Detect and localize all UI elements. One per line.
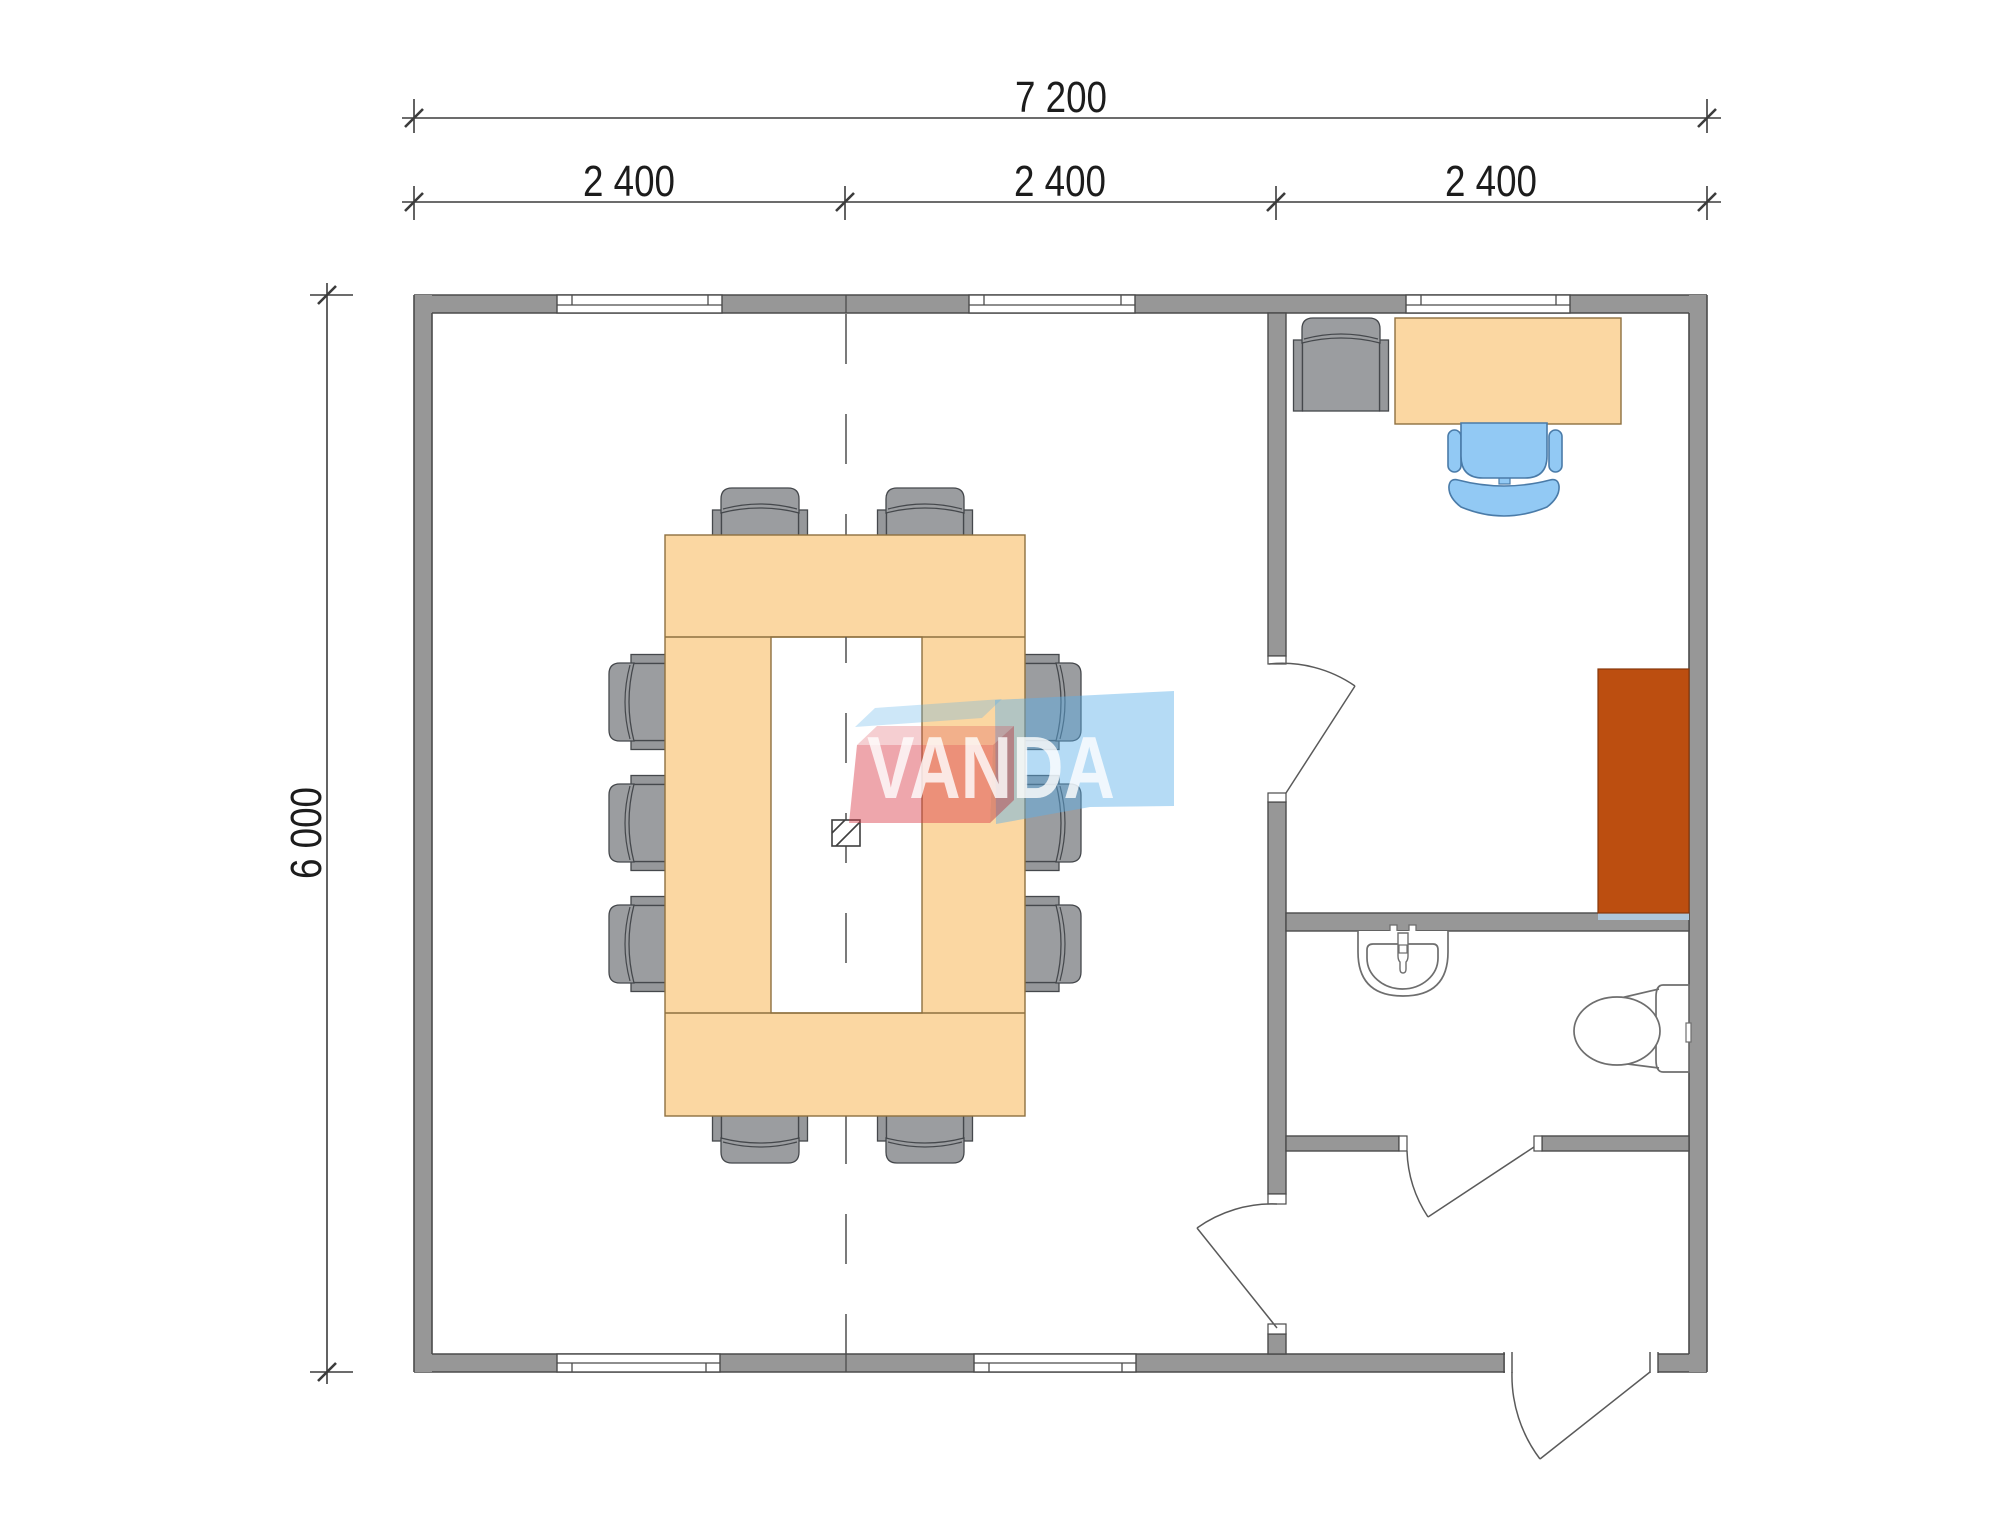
svg-text:7 200: 7 200	[1015, 73, 1107, 122]
svg-text:2 400: 2 400	[1445, 157, 1537, 206]
svg-text:2 400: 2 400	[1014, 157, 1106, 206]
svg-text:2 400: 2 400	[583, 157, 675, 206]
svg-text:VANDA: VANDA	[867, 718, 1115, 817]
svg-text:6 000: 6 000	[282, 787, 331, 879]
